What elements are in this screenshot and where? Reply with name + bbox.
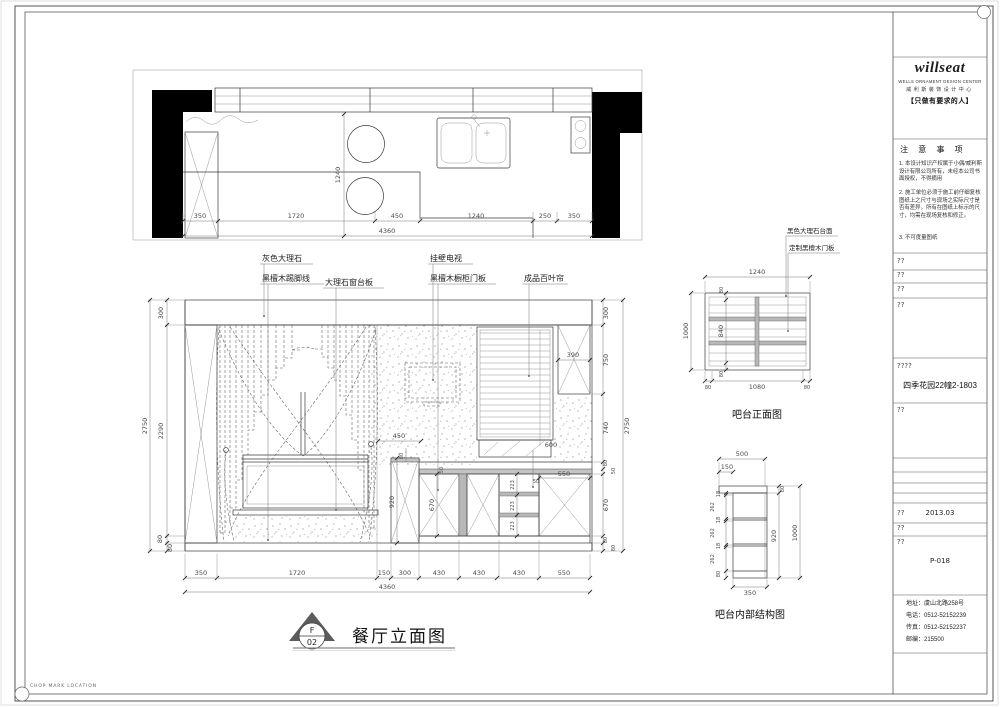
plan-dim: 450 <box>391 212 403 220</box>
curtain-tieback-left <box>224 448 229 453</box>
sheet-frame: CHOP MARK LOCATION <box>1 1 998 705</box>
elev-dim: 300 <box>157 307 165 319</box>
elev-marble-wall <box>369 325 477 465</box>
elev-dim: 670 <box>428 499 436 511</box>
plan-column <box>185 132 218 238</box>
bar-dim: 80 <box>716 571 722 577</box>
field-placeholder: ?? <box>897 285 904 293</box>
elev-dim: 50 <box>439 467 445 473</box>
bar-dim: 920 <box>770 530 778 542</box>
bar-front-title: 吧台正面图 <box>732 408 782 421</box>
plan-dim: 250 <box>539 212 551 220</box>
label-tv: 挂壁电视 <box>430 253 462 263</box>
elev-dim: 1720 <box>289 569 306 577</box>
elev-window <box>233 392 378 515</box>
registration-circle-bottom <box>15 687 29 701</box>
elev-dim-overall: 2750 <box>623 418 631 435</box>
elev-dim: 430 <box>513 569 525 577</box>
field-placeholder: ?? <box>897 406 904 414</box>
chop-mark-label: CHOP MARK LOCATION <box>30 683 97 689</box>
bar-dim: 1000 <box>791 525 799 542</box>
plan-dim: 350 <box>568 212 580 220</box>
elev-dim: 300 <box>602 307 610 319</box>
elev-marble-wall2 <box>554 396 592 462</box>
logo-subtitle-cn: 威利斯装饰设计中心 <box>894 86 986 93</box>
elev-ceiling-band <box>185 300 592 325</box>
elev-dim: 80 <box>166 544 174 552</box>
project-name: 四季花园22幢2-1803 <box>894 380 986 391</box>
field-placeholder: ?? <box>897 524 904 532</box>
elev-blinds <box>477 327 553 457</box>
elev-dim: 450 <box>393 432 405 440</box>
elev-dim-overall: 2750 <box>141 418 149 435</box>
elev-dim: 223 <box>510 501 516 511</box>
elev-dim-total: 4360 <box>379 583 396 591</box>
bar-dim: 80 <box>780 486 786 492</box>
plan-view: 350 1720 450 1240 250 350 4360 1240 <box>133 70 642 240</box>
elev-dim: 50 <box>533 479 539 485</box>
elev-dim: 350 <box>195 569 207 577</box>
registration-circle-top <box>978 6 991 19</box>
plan-sink-tap-cross <box>484 130 490 136</box>
label-gray-marble: 灰色大理石 <box>262 253 302 263</box>
elev-dim: 750 <box>602 354 610 366</box>
elevation-title: 餐厅立面图 <box>352 627 447 646</box>
bar-dim: 500 <box>736 450 748 458</box>
bar-dim: 840 <box>717 325 725 337</box>
elev-dim: 80 <box>156 535 164 543</box>
plan-wall-right <box>592 92 642 238</box>
bar-dim: 80 <box>719 287 725 293</box>
bar-dim: 350 <box>744 589 756 597</box>
page-edge <box>1 1 998 705</box>
elev-window-sill <box>233 510 378 515</box>
fax-line: 传真：0512-52152237 <box>906 625 966 631</box>
elev-dim-right: 300 750 740 80 50 670 80 80 2750 <box>592 298 631 553</box>
bar-dim: 80 <box>804 385 810 391</box>
elev-dim: 300 <box>399 569 411 577</box>
field-placeholder: ?? <box>897 271 904 279</box>
elev-dim: 600 <box>545 441 557 449</box>
elev-left-column <box>185 325 217 543</box>
marker-number: 02 <box>307 638 317 647</box>
bar-dim: 80 <box>705 385 711 391</box>
elev-dim: 150 <box>378 569 390 577</box>
elev-dim: 550 <box>558 569 570 577</box>
label-skirting: 黑檀木踢脚线 <box>262 273 310 283</box>
elev-dim: 740 <box>602 422 610 434</box>
bar-dim: 1240 <box>749 268 766 276</box>
note-3: 3. 不可度量图纸 <box>899 235 983 243</box>
bar-section-slab <box>719 486 767 493</box>
plan-dim: 1720 <box>288 212 305 220</box>
bar-front-labels: 黑色大理石台面 定制黑檀木门板 <box>785 226 840 332</box>
bar-dim: 18 <box>716 491 722 497</box>
bar-dim: 18 <box>716 543 722 549</box>
elev-dim: 50 <box>611 468 617 474</box>
elev-dim: 80 <box>399 453 405 459</box>
elev-dim: 80 <box>603 537 609 543</box>
plan-window-band <box>215 88 592 112</box>
plan-dimensions: 350 1720 450 1240 250 350 4360 1240 <box>181 112 594 238</box>
project-label: ???? <box>897 362 912 370</box>
bar-section-view: 500 150 18 262 18 262 18 262 80 80 920 1… <box>710 450 802 621</box>
label-sill: 大理石窗台板 <box>325 277 373 287</box>
logo-slogan: 【只做有要求的人】 <box>894 95 986 105</box>
cad-drawing-canvas: CHOP MARK LOCATION <box>0 0 1000 707</box>
elev-dim: 430 <box>433 569 445 577</box>
bar-section-body <box>733 493 767 578</box>
elev-right-panel <box>558 325 590 394</box>
plan-dim: 1240 <box>468 212 485 220</box>
elev-dim: 550 <box>558 470 570 478</box>
elev-dim: 390 <box>567 351 579 359</box>
elev-dim-bottom: 350 1720 150 300 430 430 430 550 4360 <box>183 540 592 594</box>
postal-line: 邮编：215500 <box>906 637 944 643</box>
drawing-sheet: CHOP MARK LOCATION <box>0 0 1000 707</box>
plan-hob-small <box>571 117 590 153</box>
bar-section-dims: 500 150 18 262 18 262 18 262 80 80 920 1… <box>710 450 802 597</box>
date-value: 2013.03 <box>894 509 986 517</box>
bar-dim: 18 <box>716 517 722 523</box>
label-blinds: 成品百叶帘 <box>524 273 564 283</box>
elev-dim: 80 <box>603 460 609 466</box>
note-2: 2. 施工单位必须于施工前仔细复核图纸上之尺寸与现场之实际尺寸是否有差异，所有在… <box>899 190 983 220</box>
address-line: 地址：虞山北路258号 <box>906 601 964 607</box>
bar-dim: 1080 <box>749 383 766 391</box>
elevation-view: 灰色大理石 黑檀木踢脚线 大理石窗台板 挂壁电视 黑檀木橱柜门板 成品百叶帘 3… <box>141 253 631 594</box>
bar-front-divider <box>755 297 759 366</box>
titleblock-grid <box>893 12 987 694</box>
elev-dim: 80 <box>611 545 617 551</box>
bar-dim: 262 <box>710 554 716 564</box>
logo-subtitle-en: WELLS ORNAMENT DESIGN CENTER <box>894 79 986 84</box>
drawing-title: F 02 餐厅立面图 <box>289 612 455 651</box>
elev-dim-left: 300 2290 80 80 2750 <box>141 298 185 553</box>
label-bar-door: 定制黑檀木门板 <box>789 243 835 252</box>
plan-sink <box>437 115 510 168</box>
marker-letter: F <box>310 626 315 635</box>
cabinet-divider <box>459 474 467 536</box>
field-placeholder: ?? <box>897 301 904 309</box>
bar-dim: 80 <box>719 371 725 377</box>
plan-cooktop <box>347 126 385 215</box>
bar-dim: 262 <box>710 528 716 538</box>
plan-break-line <box>186 116 258 124</box>
elev-dim: 430 <box>473 569 485 577</box>
notes-title: 注 意 事 项 <box>900 144 967 155</box>
plan-dim-depth: 1240 <box>334 167 342 184</box>
drawing-no-label: ?? <box>897 538 904 546</box>
elev-dim: 223 <box>510 521 516 531</box>
elev-dim: 2290 <box>157 423 165 440</box>
bar-section-title: 吧台内部结构图 <box>715 608 785 621</box>
label-cabinet-door: 黑檀木橱柜门板 <box>430 273 486 283</box>
field-placeholder: ?? <box>897 257 904 265</box>
bar-front-view: 黑色大理石台面 定制黑檀木门板 1240 1000 80 840 80 80 1… <box>682 226 840 421</box>
label-bar-top: 黑色大理石台面 <box>787 226 833 235</box>
elev-dim: 670 <box>602 499 610 511</box>
bar-front-dims: 1240 1000 80 840 80 80 1080 80 <box>682 268 812 391</box>
elev-marble-base <box>234 516 377 542</box>
plan-counter-edge <box>183 172 533 238</box>
elev-floor-band <box>185 543 592 551</box>
bar-dim: 1000 <box>682 323 690 340</box>
drawing-number: P-018 <box>894 557 986 565</box>
elev-curtains <box>217 325 378 542</box>
note-1: 1. 本设计知识产权属于小偶/威利斯设计有限公司所有，未经本公司书面授权，不得摘… <box>899 161 983 184</box>
plan-dim: 350 <box>194 212 206 220</box>
phone-line: 电话：0512-52152239 <box>906 613 966 619</box>
elev-dim: 223 <box>510 480 516 490</box>
elev-dim: 920 <box>388 496 396 508</box>
bar-dim: 262 <box>710 502 716 512</box>
plinth <box>419 536 590 543</box>
logo: willseat <box>894 60 986 77</box>
plan-dim-total: 4360 <box>379 227 396 235</box>
bar-dim: 150 <box>721 463 733 471</box>
